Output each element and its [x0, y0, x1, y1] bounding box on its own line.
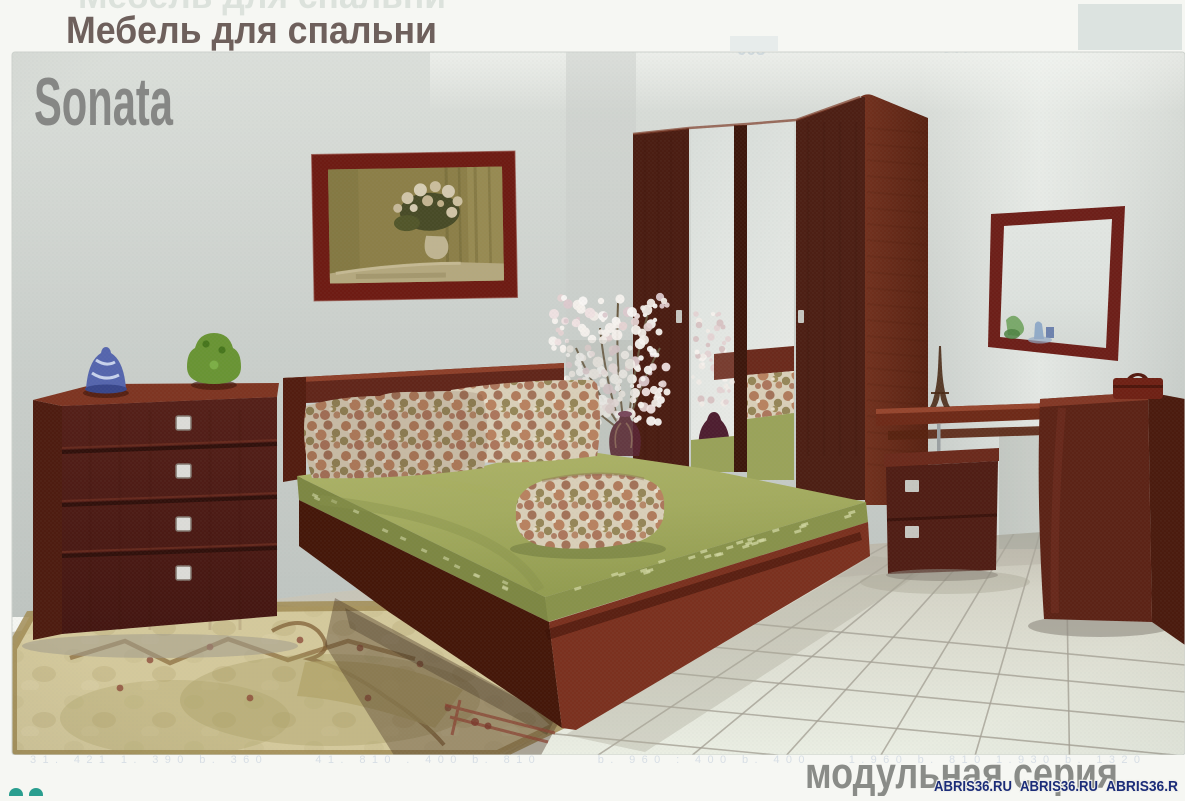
svg-text:Мебель для спальни: Мебель для спальни: [66, 10, 437, 52]
svg-text:ABRIS36.RU: ABRIS36.RU: [934, 778, 1012, 795]
svg-text:ABRIS36.R: ABRIS36.R: [1106, 778, 1178, 795]
svg-text:ABRIS36.RU: ABRIS36.RU: [1020, 778, 1098, 795]
svg-text:Sonata: Sonata: [34, 64, 174, 140]
